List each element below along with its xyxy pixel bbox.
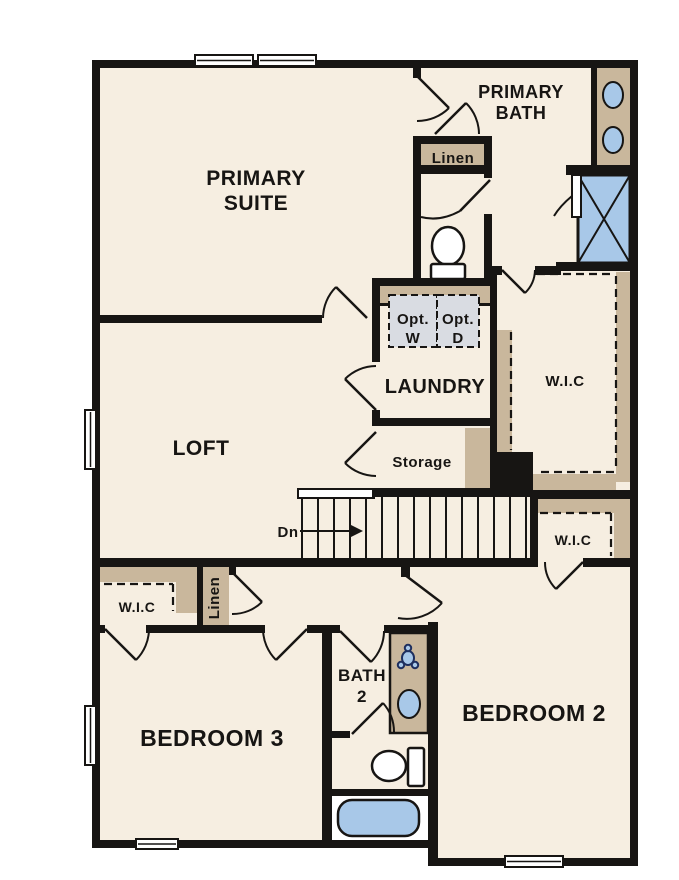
window [85,410,96,469]
primary-bath-label-2: BATH [496,103,547,123]
wic-primary-shelf-bottom [533,474,616,490]
bath2-label: BATH [338,666,386,685]
shower [578,175,630,263]
wic-hall-shelf [533,499,630,513]
primary-bath-label: PRIMARY [478,82,564,102]
window [505,856,563,867]
opt-dryer-label-2: D [452,330,463,347]
floor-plan-page: PRIMARY SUITE PRIMARY BATH Linen Opt. W … [0,0,679,880]
linen-hall-label: Linen [432,150,475,167]
bathtub [332,796,428,840]
bedroom3-label: BEDROOM 3 [140,725,284,751]
loft-label: LOFT [173,437,230,460]
bath2-label-2: 2 [357,687,367,706]
bedroom2-label: BEDROOM 2 [462,700,606,726]
stairs-dn-label: Dn [278,524,299,541]
wic-primary-shelf-left [497,330,512,452]
wic-bed3-shelf-right [176,567,197,613]
wic-primary-label: W.I.C [545,373,584,390]
window [195,55,253,66]
linen-bed3-label: Linen [206,577,223,620]
window [258,55,316,66]
bath2-sink [398,690,420,718]
storage-shelf [465,428,490,488]
window [85,706,96,765]
wic-primary-shelf-right [616,272,630,482]
wic-bed3-label: W.I.C [119,599,156,615]
structural-block [490,452,533,492]
bath2-vanity [390,633,428,733]
floor-plan: PRIMARY SUITE PRIMARY BATH Linen Opt. W … [0,0,679,880]
laundry-label: LAUNDRY [385,376,486,398]
storage-label: Storage [392,454,451,471]
primary-sink-2 [603,127,623,153]
wic-hall-label: W.I.C [555,532,592,548]
primary-suite-label: PRIMARY [206,167,306,190]
primary-sink-1 [603,82,623,108]
window [136,839,178,849]
opt-washer-label-2: W [406,330,421,347]
wic-hall-shelf-right [614,513,630,558]
opt-dryer-label: Opt. [442,311,474,328]
stair-rail [298,489,374,498]
opt-washer-label: Opt. [397,311,429,328]
primary-suite-label-2: SUITE [224,192,288,215]
primary-toilet [431,227,465,279]
